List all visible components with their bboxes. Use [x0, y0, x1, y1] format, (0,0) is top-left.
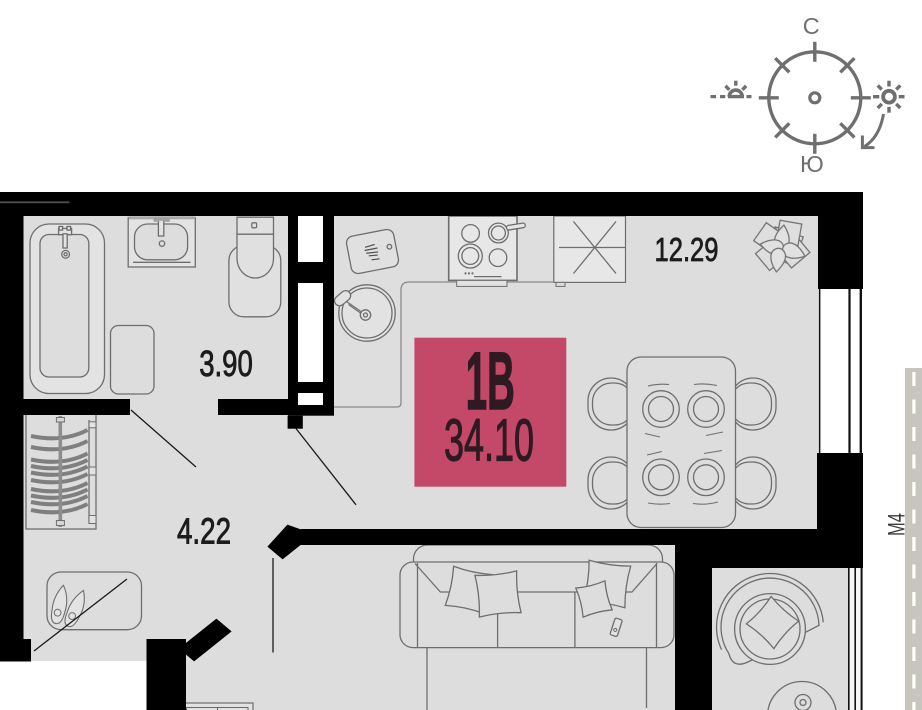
svg-text:34.10: 34.10: [444, 407, 534, 473]
svg-text:Ю: Ю: [800, 151, 824, 177]
svg-text:12.29: 12.29: [655, 231, 719, 268]
svg-text:М4: М4: [884, 513, 911, 536]
svg-text:С: С: [803, 13, 820, 39]
svg-text:4.22: 4.22: [177, 511, 231, 552]
svg-text:3.90: 3.90: [199, 343, 253, 384]
